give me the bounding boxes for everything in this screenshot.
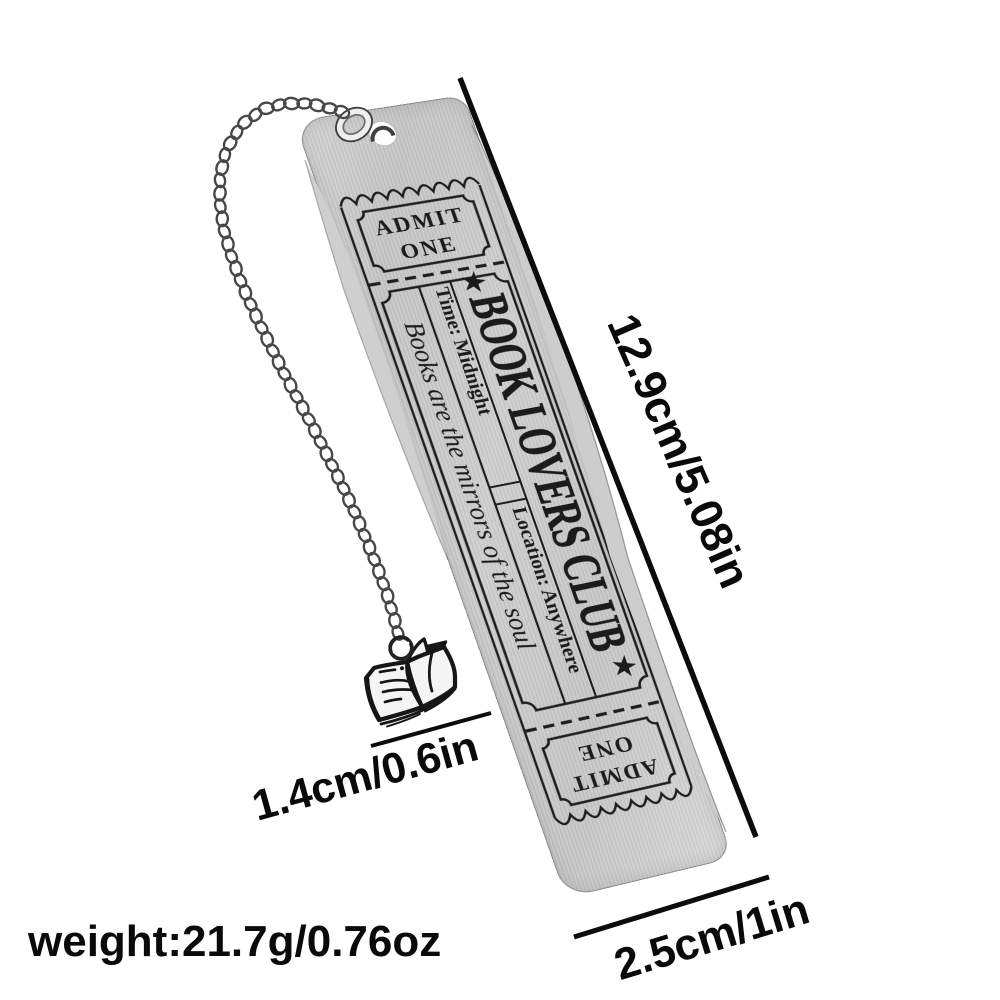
svg-text:weight:21.7g/0.76oz: weight:21.7g/0.76oz [27, 917, 441, 966]
svg-text:2.5cm/1in: 2.5cm/1in [609, 884, 815, 989]
svg-text:1.4cm/0.6in: 1.4cm/0.6in [247, 722, 483, 830]
